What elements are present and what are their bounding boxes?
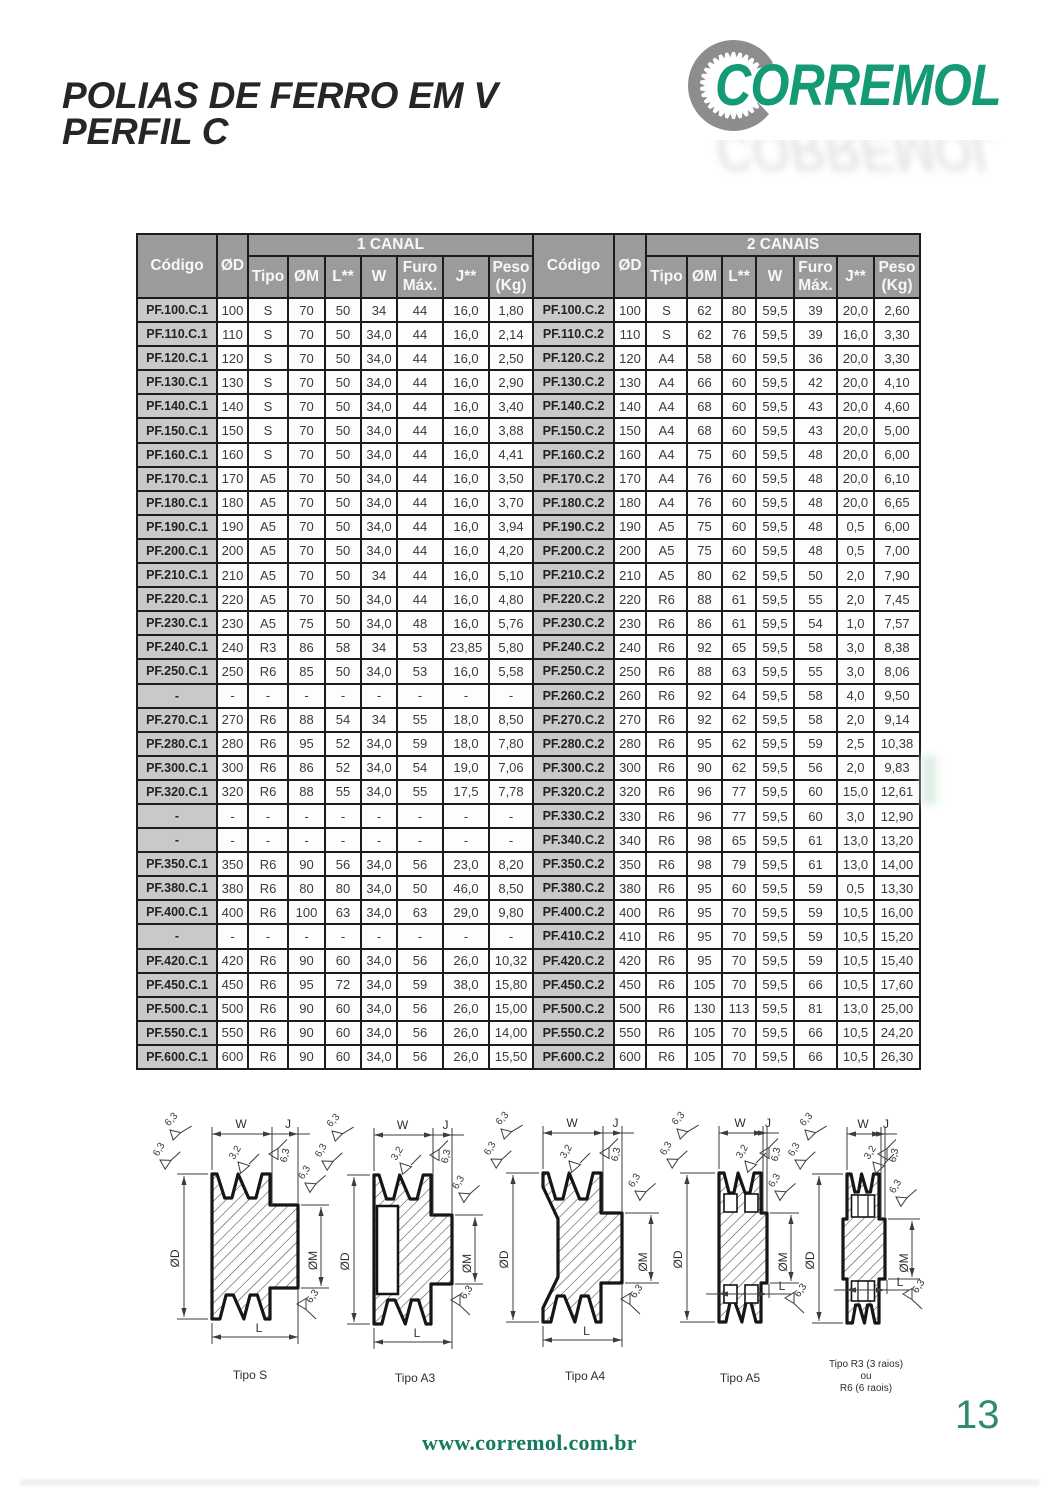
svg-text:6,3: 6,3 <box>786 1141 803 1159</box>
svg-text:6,3: 6,3 <box>626 1171 643 1189</box>
svg-text:ØM: ØM <box>460 1254 474 1273</box>
svg-text:W: W <box>397 1118 409 1132</box>
svg-text:6,3: 6,3 <box>798 1111 816 1129</box>
svg-text:ou: ou <box>860 1371 871 1382</box>
svg-text:J: J <box>883 1117 889 1131</box>
svg-text:6,3: 6,3 <box>792 1281 809 1299</box>
svg-text:Tipo A3: Tipo A3 <box>395 1371 436 1385</box>
svg-text:Tipo A4: Tipo A4 <box>565 1369 606 1383</box>
svg-text:6,3: 6,3 <box>628 1282 645 1300</box>
svg-text:6,3: 6,3 <box>658 1140 675 1158</box>
svg-text:6,3: 6,3 <box>325 1112 343 1130</box>
svg-text:3,2: 3,2 <box>558 1143 575 1161</box>
svg-text:L: L <box>779 1279 786 1293</box>
svg-text:6,3: 6,3 <box>770 1146 784 1162</box>
svg-text:ØD: ØD <box>497 1250 511 1268</box>
svg-text:Tipo S: Tipo S <box>233 1368 267 1382</box>
svg-text:J: J <box>443 1118 449 1132</box>
svg-text:6,3: 6,3 <box>482 1140 499 1158</box>
svg-text:6,3: 6,3 <box>296 1163 313 1181</box>
svg-text:ØD: ØD <box>803 1251 817 1269</box>
svg-text:J: J <box>285 1117 291 1131</box>
svg-text:6,3: 6,3 <box>304 1287 321 1305</box>
svg-text:W: W <box>857 1117 869 1131</box>
svg-text:L: L <box>583 1324 590 1338</box>
svg-text:6,3: 6,3 <box>670 1110 688 1128</box>
svg-text:6,3: 6,3 <box>163 1111 181 1129</box>
svg-text:W: W <box>566 1116 578 1130</box>
svg-text:6,3: 6,3 <box>458 1283 475 1301</box>
svg-text:6,3: 6,3 <box>440 1148 454 1164</box>
svg-text:3,2: 3,2 <box>734 1143 751 1161</box>
svg-text:ØM: ØM <box>776 1252 790 1271</box>
svg-text:L: L <box>414 1326 421 1340</box>
svg-text:3,2: 3,2 <box>862 1144 879 1162</box>
svg-text:Tipo R3 (3 raios): Tipo R3 (3 raios) <box>829 1359 903 1370</box>
svg-text:L: L <box>256 1321 263 1335</box>
svg-text:6,3: 6,3 <box>610 1146 624 1162</box>
svg-text:6,3: 6,3 <box>494 1110 512 1128</box>
svg-text:6,3: 6,3 <box>887 1177 904 1195</box>
svg-text:J: J <box>765 1116 771 1130</box>
svg-text:3,2: 3,2 <box>227 1144 244 1162</box>
svg-text:ØD: ØD <box>338 1252 352 1270</box>
svg-text:R6 (6 raois): R6 (6 raois) <box>840 1383 892 1394</box>
svg-text:ØD: ØD <box>671 1250 685 1268</box>
svg-text:6,3: 6,3 <box>910 1277 927 1295</box>
svg-text:6,3: 6,3 <box>313 1142 330 1160</box>
svg-text:ØM: ØM <box>897 1253 911 1272</box>
svg-text:6,3: 6,3 <box>450 1173 467 1191</box>
svg-text:ØM: ØM <box>306 1251 320 1270</box>
svg-text:6,3: 6,3 <box>151 1141 168 1159</box>
svg-text:W: W <box>734 1116 746 1130</box>
svg-text:J: J <box>613 1116 619 1130</box>
svg-text:6,3: 6,3 <box>279 1147 293 1163</box>
svg-text:6,3: 6,3 <box>888 1147 902 1163</box>
svg-text:ØM: ØM <box>636 1252 650 1271</box>
svg-text:6,3: 6,3 <box>766 1171 783 1189</box>
svg-text:Tipo A5: Tipo A5 <box>720 1371 761 1385</box>
svg-text:W: W <box>235 1117 247 1131</box>
svg-text:3,2: 3,2 <box>389 1145 406 1163</box>
svg-text:ØD: ØD <box>168 1249 182 1267</box>
svg-text:L: L <box>897 1275 904 1289</box>
